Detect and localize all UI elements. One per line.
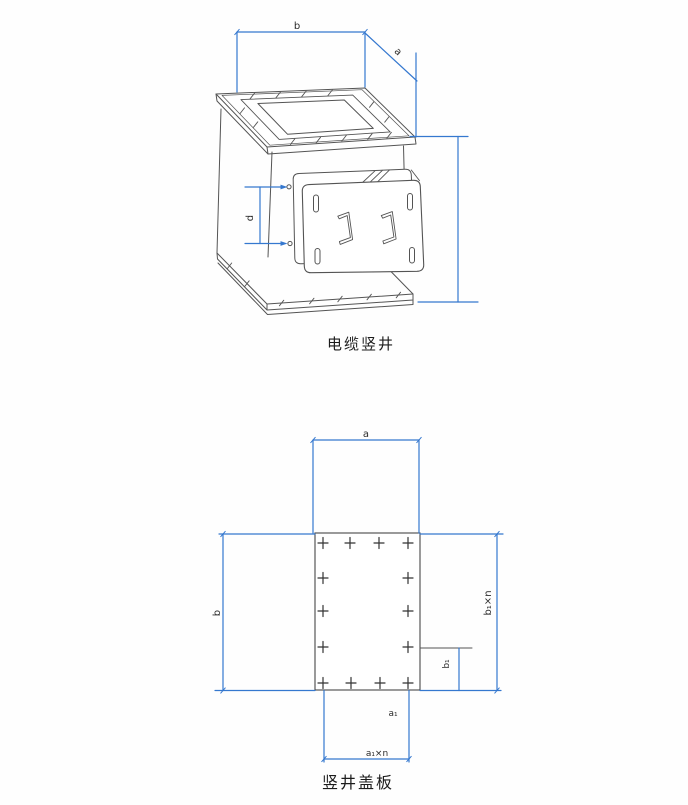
cable-shaft-figure: b a d [216, 21, 478, 315]
technical-drawing-canvas: b a d [0, 0, 688, 805]
dim-label-b: b [294, 21, 300, 32]
top-flange [216, 88, 416, 154]
dim-label-a1: a₁ [388, 709, 398, 719]
figure-caption-cover-plate: 竖井盖板 [268, 769, 448, 793]
plate-bolt [287, 185, 291, 189]
plate-front-face [302, 180, 423, 272]
dim-label-b1: b₁ [442, 659, 452, 669]
dim-label-a: a [392, 46, 404, 58]
dim-label-a: a [363, 429, 369, 440]
dim-label-d: d [245, 215, 256, 221]
dim-label-b: b [212, 610, 223, 616]
dim-label-b1xn: b₁×n [483, 590, 494, 615]
cover-plate-figure: a b b₁×n b₁ a₁ a₁×n [212, 429, 503, 762]
cable-support-plate [287, 169, 424, 272]
plate-bolt [288, 241, 292, 245]
dim-label-a1xn: a₁×n [366, 749, 388, 759]
figure-caption-cable-shaft: 电缆竖井 [271, 333, 451, 354]
page: b a d [0, 0, 688, 805]
